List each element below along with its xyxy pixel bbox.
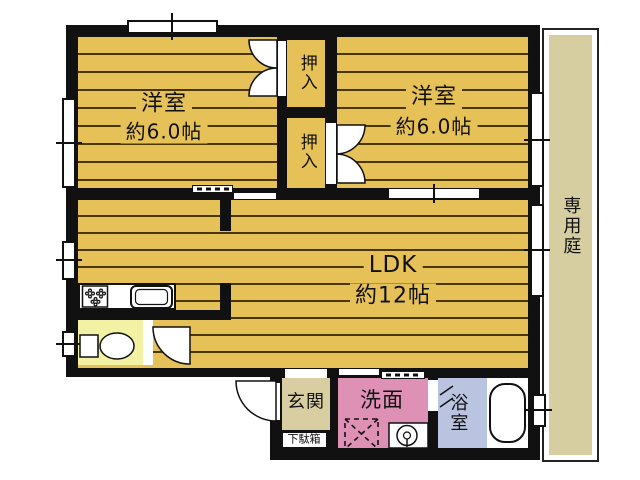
window-right-bath [532, 394, 546, 427]
floor-plan: 洋室 約6.0帖 洋室 約6.0帖 LDK 約12帖 押入 押入 玄関 下駄箱 … [0, 0, 640, 480]
shoe-cabinet-label: 下駄箱 [288, 434, 321, 447]
entrance-hall-opening [285, 369, 327, 378]
toilet-room-floor [78, 320, 143, 365]
bedroom1-sliding-door-leaf-a [192, 185, 233, 193]
bedroom1-size: 約6.0帖 [121, 121, 208, 144]
bathroom-label: 浴室 [447, 393, 468, 433]
window-right-ldk [530, 204, 544, 297]
closet2-door-opening [325, 122, 337, 185]
entrance-label: 玄関 [287, 393, 325, 414]
bedroom2-sliding-door [388, 188, 480, 199]
bathroom-door-opening [428, 380, 438, 411]
closet1-label: 押入 [296, 54, 316, 92]
bedroom2-size: 約6.0帖 [391, 116, 478, 139]
garden-label: 専用庭 [560, 196, 581, 256]
window-right-bedroom2 [530, 92, 544, 187]
kitchen-wall-horizontal [66, 310, 231, 320]
closet2-label: 押入 [296, 133, 316, 171]
bathtub-area [487, 378, 528, 448]
window-left-toilet [62, 331, 76, 357]
closet1-door-opening [277, 40, 287, 97]
bedroom1-sliding-door-leaf-b [233, 192, 277, 200]
entry-door-leaf [271, 381, 282, 422]
toilet-door-opening [143, 320, 153, 365]
ldk-name: LDK [364, 252, 423, 278]
washroom-label: 洗面 [360, 388, 404, 412]
window-top-bedroom1 [127, 20, 218, 34]
kitchen-wall-stub-upper [220, 200, 231, 231]
bedroom1-name: 洋室 [136, 91, 192, 116]
bedroom2-floor [337, 37, 528, 188]
washroom-sliding-door-leaf-a [338, 368, 380, 376]
window-left-bedroom1 [62, 98, 76, 188]
window-left-ldk [62, 241, 76, 280]
kitchen-counter [78, 283, 176, 310]
bedroom2-name: 洋室 [406, 84, 462, 109]
ldk-size: 約12帖 [350, 283, 436, 308]
washroom-sliding-door-leaf-b [381, 371, 425, 379]
